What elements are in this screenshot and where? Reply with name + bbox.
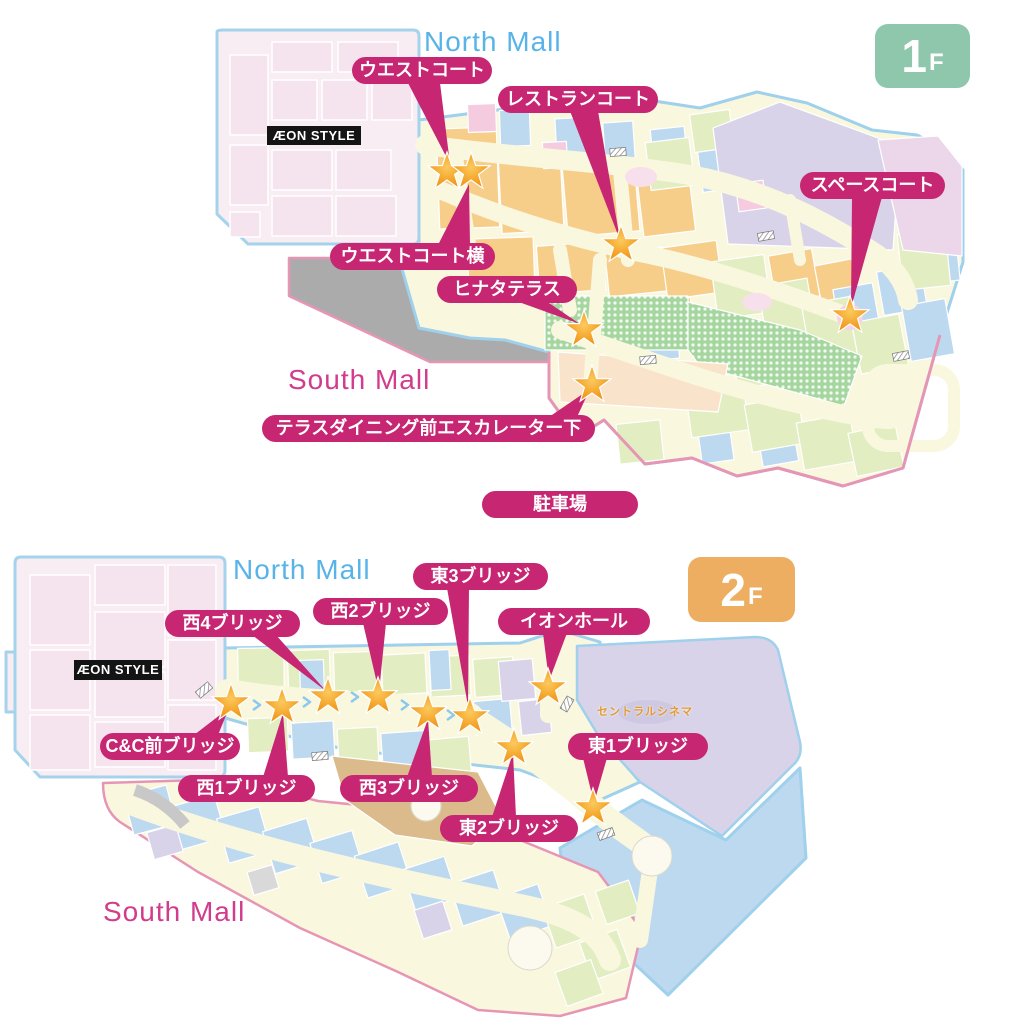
central-cinema-label: セントラルシネマ — [597, 703, 693, 719]
location-badge-west-court-side[interactable]: ウエストコート横 — [330, 243, 495, 270]
location-badge-west1-bridge[interactable]: 西1ブリッジ — [178, 775, 315, 802]
floor1-aeon-style-logo: ÆON STYLE — [267, 126, 361, 145]
floor1-south-mall-label: South Mall — [288, 364, 430, 396]
mall-floor-maps: North Mall South Mall 1F ÆON STYLE ウエストコ… — [0, 0, 1010, 1034]
location-badge-restaurant-court[interactable]: レストランコート — [498, 86, 658, 113]
floor1-badge-number: 1 — [901, 33, 927, 79]
floor2-south-mall-label: South Mall — [103, 896, 245, 928]
location-badge-west3-bridge[interactable]: 西3ブリッジ — [340, 775, 478, 802]
star-marker-east2-bridge[interactable] — [492, 726, 536, 770]
star-marker-aeon-hall[interactable] — [526, 666, 570, 710]
star-marker-west3-bridge[interactable] — [406, 691, 450, 735]
floor1-north-mall-label: North Mall — [424, 26, 562, 58]
location-badge-aeon-hall[interactable]: イオンホール — [498, 608, 650, 635]
star-marker-west4-bridge[interactable] — [306, 675, 350, 719]
floor2-badge-number: 2 — [720, 567, 746, 613]
parking-badge[interactable]: 駐車場 — [482, 491, 638, 518]
location-badge-west2-bridge[interactable]: 西2ブリッジ — [313, 598, 448, 625]
floor1-badge-suffix: F — [929, 51, 944, 75]
star-marker-space-court[interactable] — [828, 294, 872, 338]
location-badge-terrace-dining[interactable]: テラスダイニング前エスカレーター下 — [262, 415, 595, 442]
location-badge-east3-bridge[interactable]: 東3ブリッジ — [413, 563, 548, 590]
floor2-aeon-style-logo: ÆON STYLE — [74, 660, 162, 680]
location-badge-east2-bridge[interactable]: 東2ブリッジ — [440, 815, 578, 842]
location-badge-cc-front-bridge[interactable]: C&C前ブリッジ — [100, 733, 240, 760]
star-marker-east3-bridge[interactable] — [448, 695, 492, 739]
star-marker-east1-bridge[interactable] — [571, 786, 615, 830]
star-marker-west1-bridge[interactable] — [260, 685, 304, 729]
star-marker-terrace-dining[interactable] — [570, 363, 614, 407]
floor2-north-mall-label: North Mall — [233, 554, 371, 586]
location-badge-west4-bridge[interactable]: 西4ブリッジ — [165, 610, 300, 637]
floor2-badge[interactable]: 2F — [688, 557, 795, 622]
floor2-badge-suffix: F — [748, 585, 763, 609]
star-marker-west2-bridge[interactable] — [356, 675, 400, 719]
star-marker-cc-front-bridge[interactable] — [209, 681, 253, 725]
location-badge-hinata-terrace[interactable]: ヒナタテラス — [437, 276, 577, 303]
star-marker-west-court-b[interactable] — [449, 150, 493, 194]
floor1-badge[interactable]: 1F — [875, 24, 970, 88]
location-badge-space-court[interactable]: スペースコート — [800, 172, 945, 199]
location-badge-east1-bridge[interactable]: 東1ブリッジ — [568, 733, 708, 760]
star-marker-hinata-terrace[interactable] — [562, 308, 606, 352]
location-badge-west-court[interactable]: ウエストコート — [352, 57, 492, 84]
star-marker-restaurant-court[interactable] — [599, 223, 643, 267]
